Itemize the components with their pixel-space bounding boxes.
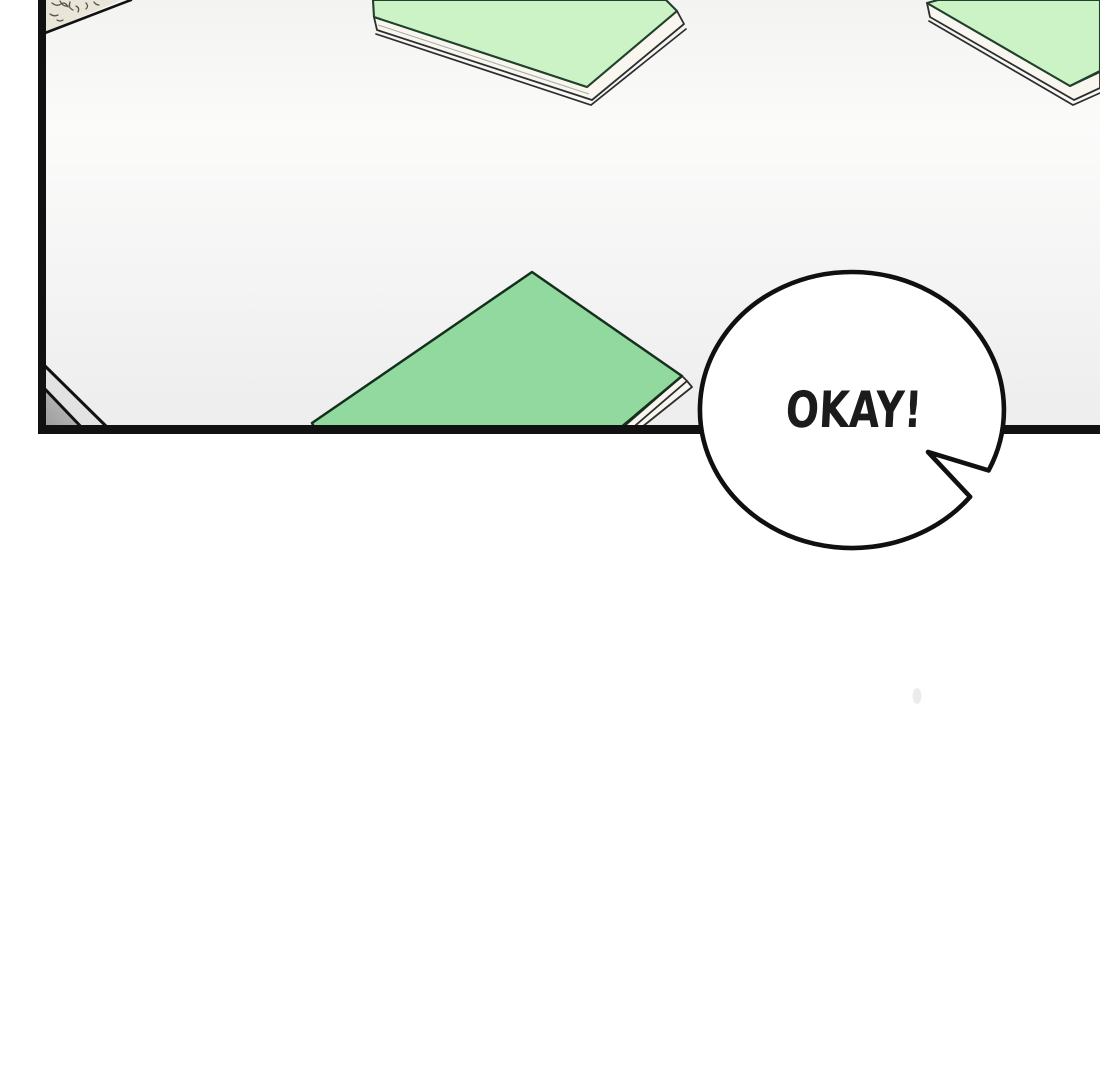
panel-border-left bbox=[38, 0, 46, 434]
comic-page: OKAY! bbox=[0, 0, 1100, 1080]
speech-text: OKAY! bbox=[784, 381, 923, 439]
smudge-mark bbox=[913, 688, 922, 704]
comic-scene: OKAY! bbox=[0, 0, 1100, 1080]
